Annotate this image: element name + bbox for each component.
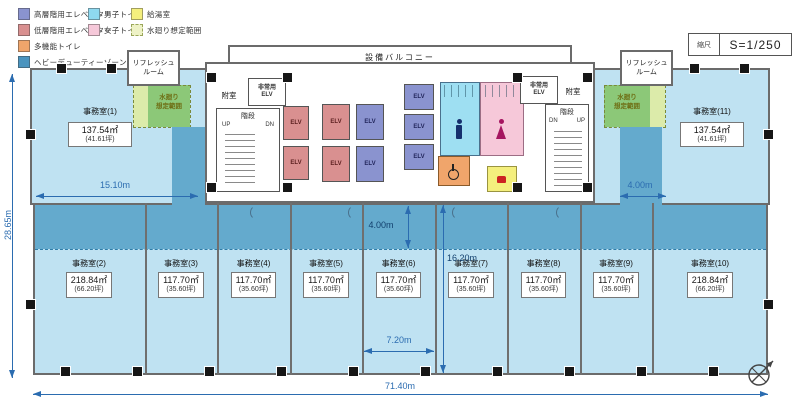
- column: [283, 73, 292, 82]
- toilet-stalls: [444, 85, 474, 97]
- kitchenette-swatch: [131, 8, 143, 20]
- office-9: 事務室(9) 117.70㎡(35.60坪): [580, 258, 652, 322]
- heavy-duty-strip-left: [172, 127, 205, 205]
- column: [283, 183, 292, 192]
- dim-wing-right: 4.00m: [612, 180, 668, 190]
- dim-line: [364, 351, 434, 352]
- refresh-room-left: リフレッシュ ルーム: [127, 50, 180, 86]
- north-compass-icon: [744, 354, 780, 390]
- dim-wing-left: 15.10m: [75, 180, 155, 190]
- column: [133, 367, 142, 376]
- office-1-area: 137.54㎡ (41.61坪): [68, 122, 132, 147]
- dim-line: [620, 196, 666, 197]
- dim-total-height: 28.65m: [3, 195, 13, 255]
- legend-item-accessible-toilet: 多機能トイレ: [18, 40, 81, 52]
- accessible-toilet-swatch: [18, 40, 30, 52]
- column: [207, 183, 216, 192]
- heavy-duty-swatch: [18, 56, 30, 68]
- lowrise-elevator: ELV: [283, 146, 309, 180]
- office-6: 事務室(6) 117.70㎡(35.60坪): [362, 258, 435, 322]
- office-7: 事務室(7) 117.70㎡(35.60坪): [435, 258, 507, 322]
- mens-toilet-room: [440, 82, 480, 156]
- office-2: 事務室(2) 218.84㎡(66.20坪): [33, 258, 145, 322]
- dim-line: [443, 205, 444, 373]
- column: [565, 367, 574, 376]
- accessible-toilet-room: [438, 156, 470, 186]
- refresh-room-right: リフレッシュ ルーム: [620, 50, 673, 86]
- legend-item-kitchenette: 給湯室: [131, 8, 170, 20]
- column: [205, 367, 214, 376]
- emergency-elevator-right: 非常用 ELV: [520, 76, 558, 104]
- column: [583, 73, 592, 82]
- dim-total-width: 71.40m: [370, 381, 430, 391]
- dim-line: [33, 394, 768, 395]
- lowrise-elevator: ELV: [322, 146, 350, 182]
- column: [764, 300, 773, 309]
- door-arc: [452, 205, 467, 220]
- equipment-balcony-label: 設備バルコニー: [365, 52, 435, 63]
- legend-label: 多機能トイレ: [34, 41, 81, 52]
- office-11-name: 事務室(11): [668, 106, 756, 117]
- column: [421, 367, 430, 376]
- door-arc: [556, 205, 571, 220]
- column: [277, 367, 286, 376]
- office-8: 事務室(8) 117.70㎡(35.60坪): [507, 258, 580, 322]
- stairs-right: 階段 DN UP: [545, 104, 589, 192]
- column: [207, 73, 216, 82]
- legend-label: 給湯室: [147, 9, 170, 20]
- door-arc: [250, 205, 265, 220]
- legend-label: 水廻り想定範囲: [147, 25, 202, 36]
- stair-treads: [225, 134, 255, 188]
- door-arc: [348, 205, 363, 220]
- highrise-elevator: ELV: [404, 114, 434, 140]
- kettle-icon: [497, 176, 506, 183]
- column: [61, 367, 70, 376]
- dim-line: [408, 206, 409, 248]
- lowrise-elevator: ELV: [322, 104, 350, 140]
- column: [107, 64, 116, 73]
- anteroom-left-label: 附室: [212, 90, 246, 101]
- scale-value: S=1/250: [720, 34, 791, 55]
- water-zone-left-label: 水廻り 想定範囲: [148, 94, 190, 112]
- dim-bay-width: 7.20m: [372, 335, 426, 345]
- legend-item-water-zone: 水廻り想定範囲: [131, 24, 202, 36]
- column: [637, 367, 646, 376]
- office-11-area: 137.54㎡ (41.61坪): [680, 122, 744, 147]
- office-3: 事務室(3) 117.70㎡(35.60坪): [145, 258, 217, 322]
- anteroom-right-label: 附室: [556, 86, 590, 97]
- highrise-elevator-swatch: [18, 8, 30, 20]
- dim-band-depth: 4.00m: [360, 220, 402, 230]
- toilet-stalls: [485, 85, 517, 97]
- womens-toilet-swatch: [88, 24, 100, 36]
- column: [57, 64, 66, 73]
- column: [493, 367, 502, 376]
- wheelchair-icon: [448, 169, 459, 180]
- office-4: 事務室(4) 117.70㎡(35.60坪): [217, 258, 290, 322]
- lowrise-elevator-swatch: [18, 24, 30, 36]
- scale-caption: 縮尺: [689, 34, 720, 55]
- office-5: 事務室(5) 117.70㎡(35.60坪): [290, 258, 362, 322]
- scale-box: 縮尺 S=1/250: [688, 33, 792, 56]
- floor-plan-page: 高層階用エレベーター 低層階用エレベーター 多機能トイレ ヘビーデューティーゾー…: [0, 0, 800, 419]
- emergency-elevator-left: 非常用 ELV: [248, 78, 286, 106]
- column: [709, 367, 718, 376]
- womens-toilet-room: [480, 82, 524, 156]
- lowrise-elevator: ELV: [283, 106, 309, 140]
- column: [740, 64, 749, 73]
- highrise-elevator: ELV: [404, 144, 434, 170]
- column: [26, 300, 35, 309]
- highrise-elevator: ELV: [356, 146, 384, 182]
- column: [764, 130, 773, 139]
- man-icon: [454, 119, 464, 141]
- stair-treads: [554, 131, 582, 187]
- mens-toilet-swatch: [88, 8, 100, 20]
- water-zone-light-right: [650, 85, 665, 127]
- column: [690, 64, 699, 73]
- woman-icon: [496, 119, 506, 141]
- water-zone-swatch: [131, 24, 143, 36]
- office-1-name: 事務室(1): [60, 106, 140, 117]
- dim-office-depth: 16.20m: [440, 253, 484, 263]
- column: [513, 73, 522, 82]
- column: [513, 183, 522, 192]
- dim-line: [36, 196, 198, 197]
- column: [583, 183, 592, 192]
- water-zone-right-label: 水廻り 想定範囲: [604, 94, 650, 112]
- column: [26, 130, 35, 139]
- office-10: 事務室(10) 218.84㎡(66.20坪): [652, 258, 768, 322]
- highrise-elevator: ELV: [356, 104, 384, 140]
- highrise-elevator: ELV: [404, 84, 434, 110]
- column: [349, 367, 358, 376]
- stairs-left: 階段 UP DN: [216, 108, 280, 192]
